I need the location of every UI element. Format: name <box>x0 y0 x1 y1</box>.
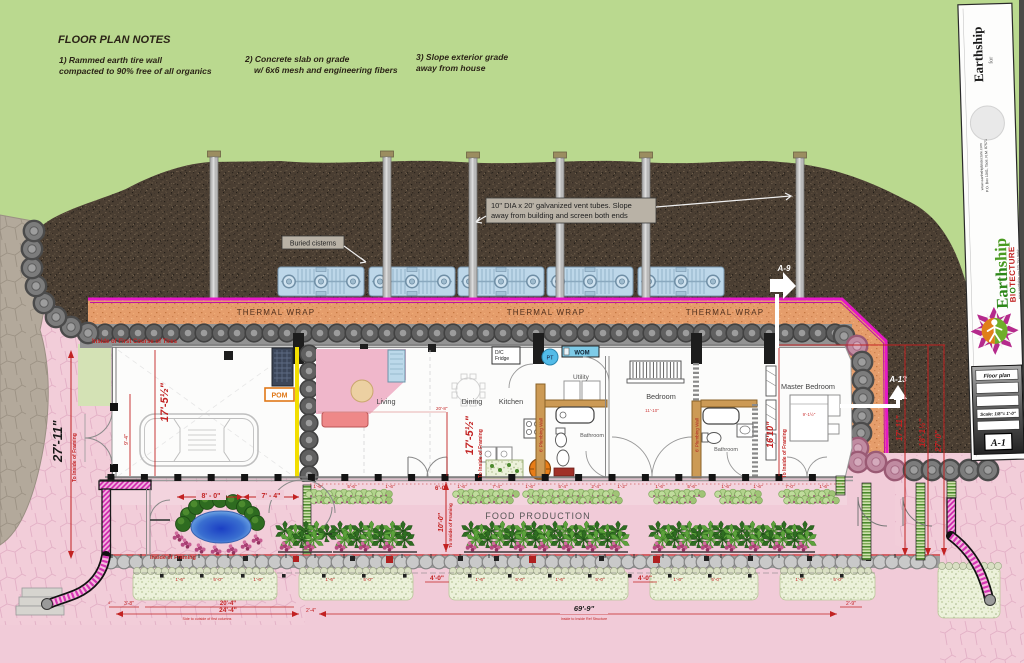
svg-text:1'-6": 1'-6" <box>313 484 323 489</box>
svg-text:compacted to 90% free of all o: compacted to 90% free of all organics <box>59 66 212 76</box>
svg-text:5'-0": 5'-0" <box>213 577 223 582</box>
svg-text:24'-4": 24'-4" <box>219 607 237 614</box>
svg-text:Fridge: Fridge <box>495 356 509 362</box>
svg-text:1'-6": 1'-6" <box>175 577 185 582</box>
svg-text:11'-10": 11'-10" <box>645 408 659 413</box>
svg-text:69'-9": 69'-9" <box>574 604 595 613</box>
svg-text:Buried cisterns: Buried cisterns <box>290 241 337 248</box>
svg-text:16'10": 16'10" <box>765 421 775 448</box>
svg-text:5'-0": 5'-0" <box>833 577 843 582</box>
svg-text:Inside of Framing: Inside of Framing <box>150 555 196 561</box>
svg-text:Living: Living <box>376 397 395 406</box>
svg-text:2) Concrete slab on grade: 2) Concrete slab on grade <box>244 54 350 64</box>
svg-text:3'-8": 3'-8" <box>124 601 134 607</box>
svg-text:1'-6": 1'-6" <box>555 577 565 582</box>
svg-text:w/ 6x6 mesh and engineering fi: w/ 6x6 mesh and engineering fibers <box>254 65 398 75</box>
svg-text:Floor plan: Floor plan <box>984 373 1011 380</box>
svg-text:7'-0": 7'-0" <box>785 484 795 489</box>
svg-text:PT: PT <box>546 356 554 362</box>
svg-text:6' Plumbing Wall: 6' Plumbing Wall <box>539 418 544 452</box>
svg-text:1'-6": 1'-6" <box>457 484 467 489</box>
svg-text:A-13: A-13 <box>888 375 907 384</box>
svg-text:1'-6": 1'-6" <box>721 484 731 489</box>
svg-text:Bathroom: Bathroom <box>714 447 738 453</box>
svg-text:WOM: WOM <box>574 351 589 357</box>
svg-text:6'-0": 6'-0" <box>435 486 448 492</box>
svg-text:10'-0": 10'-0" <box>438 512 445 532</box>
svg-text:17'-11": 17'-11" <box>895 415 904 441</box>
svg-text:To Inside of Framing: To Inside of Framing <box>782 429 788 478</box>
svg-text:2'-4": 2'-4" <box>591 484 601 489</box>
svg-text:6' Plumbing Wall: 6' Plumbing Wall <box>695 418 700 452</box>
svg-text:Inside of First Course of Tire: Inside of First Course of Tires <box>92 339 178 345</box>
svg-text:27'-11": 27'-11" <box>50 420 65 463</box>
svg-text:2'-4": 2'-4" <box>306 608 316 614</box>
svg-text:Earthship: Earthship <box>970 26 987 82</box>
svg-text:away from house: away from house <box>416 63 486 73</box>
svg-text:27'-0": 27'-0" <box>934 430 943 453</box>
svg-text:3) Slope exterior grade: 3) Slope exterior grade <box>416 52 508 62</box>
svg-text:Kitchen: Kitchen <box>499 397 523 406</box>
svg-text:4'-0": 4'-0" <box>430 575 444 582</box>
svg-text:THERMAL WRAP: THERMAL WRAP <box>686 308 765 317</box>
svg-text:Utility: Utility <box>573 374 590 381</box>
svg-text:THERMAL WRAP: THERMAL WRAP <box>237 308 316 317</box>
svg-text:1'-6": 1'-6" <box>253 577 263 582</box>
svg-text:20'-8": 20'-8" <box>436 406 448 411</box>
svg-text:To Inside of Framing: To Inside of Framing <box>478 429 484 478</box>
svg-text:1'-6": 1'-6" <box>673 577 683 582</box>
svg-text:Dining: Dining <box>462 397 483 406</box>
svg-text:FOOD PRODUCTION: FOOD PRODUCTION <box>485 511 591 521</box>
svg-text:9'-1½": 9'-1½" <box>803 411 816 417</box>
svg-text:Side to outside of first colum: Side to outside of first columns <box>183 617 232 621</box>
svg-text:1'-6": 1'-6" <box>795 577 805 582</box>
svg-text:5'-0": 5'-0" <box>711 577 721 582</box>
svg-text:Master Bedroom: Master Bedroom <box>781 382 835 391</box>
svg-text:5'-6": 5'-6" <box>687 484 697 489</box>
svg-text:THERMAL WRAP: THERMAL WRAP <box>507 308 586 317</box>
svg-text:1'-6": 1'-6" <box>655 484 665 489</box>
svg-text:A-1: A-1 <box>990 438 1006 449</box>
svg-text:POM: POM <box>272 393 288 400</box>
svg-text:FLOOR PLAN NOTES: FLOOR PLAN NOTES <box>58 34 171 46</box>
svg-text:5'-0": 5'-0" <box>595 577 605 582</box>
svg-text:7' - 4": 7' - 4" <box>262 493 281 500</box>
svg-text:5'-0": 5'-0" <box>363 577 373 582</box>
svg-text:1'-6": 1'-6" <box>819 484 829 489</box>
svg-text:1'-6": 1'-6" <box>525 484 535 489</box>
svg-text:5'-0": 5'-0" <box>515 577 525 582</box>
svg-text:4": 4" <box>108 600 112 605</box>
svg-text:2'-9": 2'-9" <box>846 601 856 607</box>
svg-text:To Inside of Framing: To Inside of Framing <box>72 433 78 482</box>
svg-text:9'-4": 9'-4" <box>124 434 130 445</box>
svg-text:10" DIA x 20' galvanized vent: 10" DIA x 20' galvanized vent tubes. Slo… <box>491 201 632 210</box>
svg-text:To Inside of Framing: To Inside of Framing <box>448 503 453 548</box>
svg-text:1) Rammed earth tire wall: 1) Rammed earth tire wall <box>59 55 163 65</box>
svg-text:1'-6": 1'-6" <box>325 577 335 582</box>
svg-text:for: for <box>987 57 994 64</box>
svg-text:5'-4": 5'-4" <box>558 484 568 489</box>
svg-text:1'-6": 1'-6" <box>385 484 395 489</box>
svg-text:18'-1½": 18'-1½" <box>918 418 927 447</box>
svg-text:1'-6": 1'-6" <box>753 484 763 489</box>
svg-text:Bedroom: Bedroom <box>646 392 676 401</box>
svg-text:1'-6": 1'-6" <box>475 577 485 582</box>
svg-text:4'-0": 4'-0" <box>638 575 652 582</box>
svg-text:A-9: A-9 <box>777 264 791 273</box>
svg-text:1'-2": 1'-2" <box>617 484 627 489</box>
svg-text:5'-6": 5'-6" <box>347 484 357 489</box>
svg-text:7'-4": 7'-4" <box>492 484 502 489</box>
svg-text:Inside to Inside Ref Structure: Inside to Inside Ref Structure <box>561 617 607 621</box>
svg-text:8' - 0": 8' - 0" <box>202 493 221 500</box>
svg-text:17'-5½": 17'-5½" <box>159 382 171 422</box>
svg-text:Bathroom: Bathroom <box>580 433 604 439</box>
svg-text:away from building and screen: away from building and screen both ends <box>491 211 628 220</box>
svg-text:17'-5½": 17'-5½" <box>464 415 476 455</box>
